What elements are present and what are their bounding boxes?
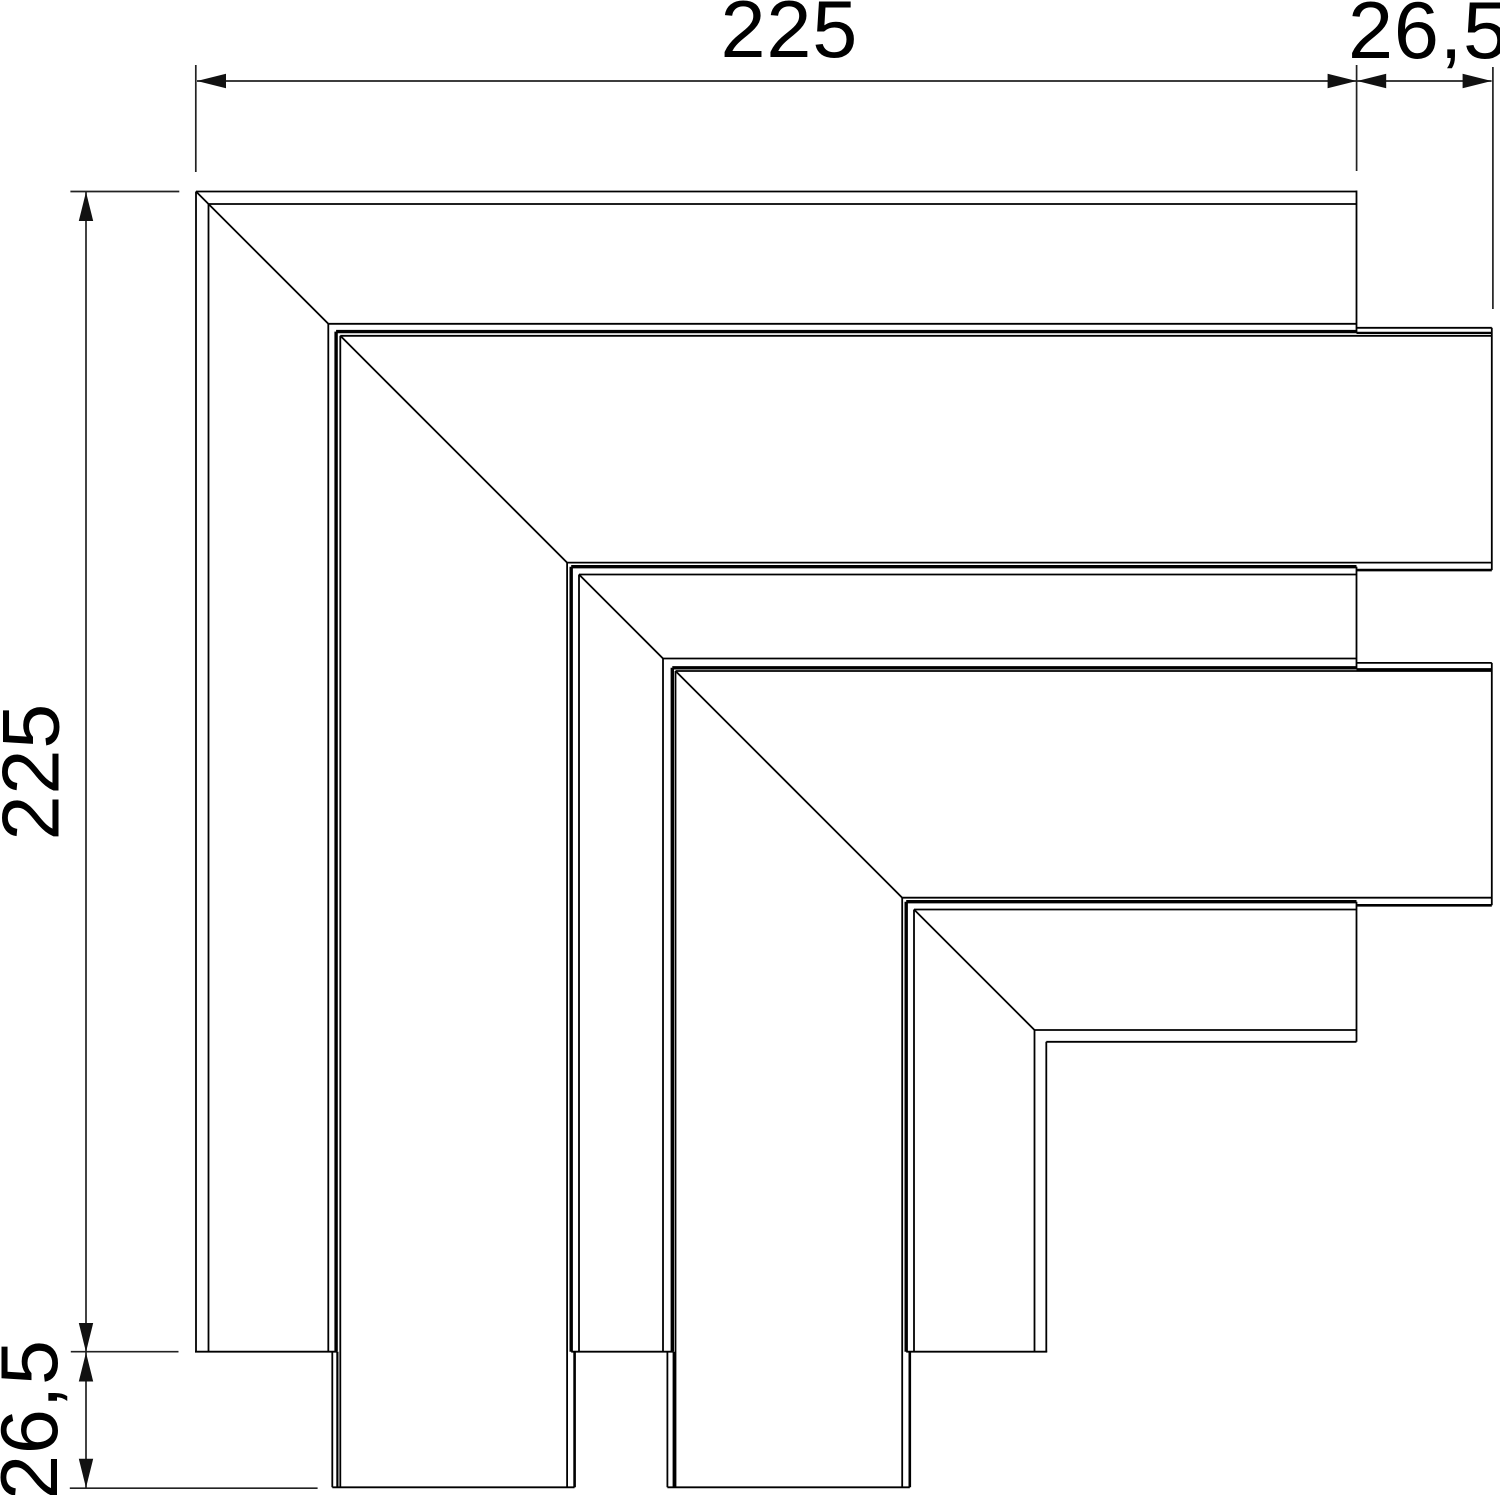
svg-text:225: 225 [0,703,77,841]
svg-text:26,5: 26,5 [0,1339,75,1495]
svg-text:26,5: 26,5 [1348,0,1500,76]
svg-text:225: 225 [721,0,859,75]
